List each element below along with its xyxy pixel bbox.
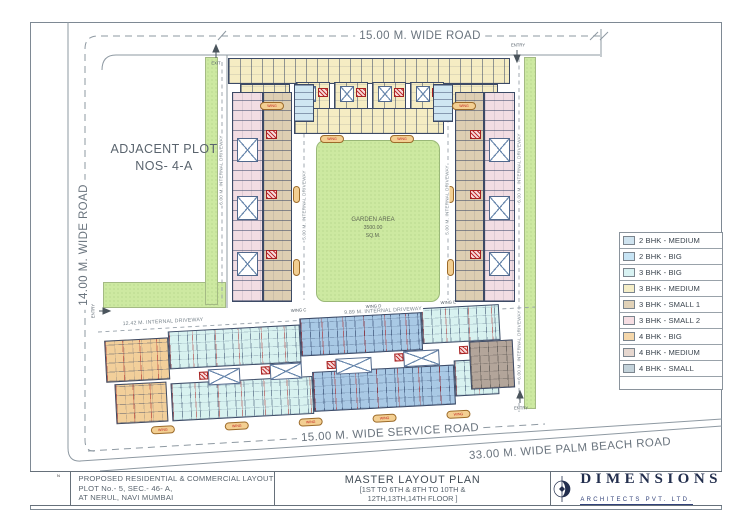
project-info-cell: PROPOSED RESIDENTIAL & COMMERCIAL LAYOUT… [71,472,274,505]
legend-swatch [623,300,635,309]
stair-core [327,361,336,369]
legend-swatch [623,316,635,325]
wing-label-pill: WING [390,135,414,143]
legend-swatch [623,364,635,373]
unit-type-legend: 2 BHK - MEDIUM 2 BHK - BIG 3 BHK - BIG 3… [619,232,723,390]
building-top-strip [228,58,510,84]
lift-shaft [403,349,440,367]
lift-shaft [237,252,258,276]
legend-label: 2 BHK - MEDIUM [639,236,700,245]
garden-line1: GARDEN AREA [351,216,394,224]
legend-empty-row [620,377,722,389]
entry-label-top: ENTRY [511,43,525,48]
legend-row: 3 BHK - SMALL 1 [620,297,722,313]
plan-title-cell: MASTER LAYOUT PLAN [1ST TO 6TH & 8TH TO … [275,472,551,505]
legend-swatch [623,332,635,341]
legend-row: 3 BHK - BIG [620,265,722,281]
lift-shaft [208,368,241,386]
wing-label-pill: WING [260,102,284,110]
building-2bhk-row [312,365,456,412]
lift-shaft [378,86,392,102]
wing-label-pill: WING [225,421,249,430]
wing-label-pill: WING [446,410,470,419]
stair-core [470,130,481,139]
stair-core [266,250,277,259]
legend-swatch [623,236,635,245]
firm-logo-cell: DIMENSIONS ARCHITECTS PVT. LTD. [551,472,722,505]
adjacent-plot-label: ADJACENT PLOT NOS- 4-A [110,141,217,175]
project-line3: AT NERUL, NAVI MUMBAI [78,493,273,503]
stair-core [470,190,481,199]
driveway-label-right-lower: 6.00 M. INTERNAL DRIVEWAY [517,309,522,380]
stair-core [470,250,481,259]
firm-name-wrap: DIMENSIONS ARCHITECTS PVT. LTD. [580,471,722,506]
legend-row: 2 BHK - MEDIUM [620,233,722,249]
building-top-lower-strip [294,108,444,134]
wing-label-pill [447,259,454,276]
master-layout-sheet: WING WING WING WING WING C WING D WING E… [0,0,751,531]
stair-core [318,88,328,97]
lift-shaft [489,196,510,220]
legend-label: 3 BHK - SMALL 2 [639,316,700,325]
legend-label: 3 BHK - BIG [639,268,682,277]
legend-row: 4 BHK - MEDIUM [620,345,722,361]
legend-swatch [623,252,635,261]
exit-label: EXIT [211,61,220,66]
driveway-label-mid-right: 5.00 M. INTERNAL DRIVEWAY [445,164,450,235]
building-3bhk-big-row [170,376,314,421]
stair-core [459,346,468,354]
adjacent-plot-line1: ADJACENT PLOT [110,141,217,158]
wing-label-pill: WING [298,417,322,426]
exit-arrow-icon [213,45,219,52]
lift-shaft [489,252,510,276]
lift-shaft [416,86,430,102]
lift-shaft [237,196,258,220]
adjacent-plot-line2: NOS- 4-A [110,158,217,175]
project-line2: PLOT No.- 5, SEC.- 46- A, [78,484,273,494]
garden-area-label: GARDEN AREA 3500.00 SQ.M. [351,216,394,240]
stair-core [266,190,277,199]
wing-label-pill [293,259,300,276]
compass-north-label: N [57,473,60,478]
lift-shaft [237,138,258,162]
wing-label-pill: WING [452,102,476,110]
legend-label: 4 BHK - SMALL [639,364,694,373]
stair-core [266,130,277,139]
building-4bhk-big [104,337,170,382]
project-line1: PROPOSED RESIDENTIAL & COMMERCIAL LAYOUT [78,474,273,484]
plan-subtitle-2: 12TH,13TH,14TH FLOOR ] [368,495,458,504]
driveway-label-left: 6.00 M. INTERNAL DRIVEWAY [219,134,224,205]
legend-row: 4 BHK - SMALL [620,361,722,377]
legend-row: 2 BHK - BIG [620,249,722,265]
legend-label: 4 BHK - BIG [639,332,682,341]
legend-swatch [623,268,635,277]
legend-swatch [623,348,635,357]
top-road-label: 15.00 M. WIDE ROAD [355,30,485,42]
firm-name: DIMENSIONS [580,471,722,488]
legend-label: 3 BHK - MEDIUM [639,284,700,293]
compass-cell [30,472,71,505]
title-block: PROPOSED RESIDENTIAL & COMMERCIAL LAYOUT… [30,471,722,506]
building-2bhk-row [299,312,423,356]
building-3bhk-big-row [421,304,501,344]
stair-core [261,366,270,374]
project-info: PROPOSED RESIDENTIAL & COMMERCIAL LAYOUT… [71,474,273,503]
wing-label: WING C [291,307,307,313]
lift-shaft [340,86,354,102]
entry-label-bottom: ENTRY [514,406,528,411]
firm-subtitle: ARCHITECTS PVT. LTD. [580,497,693,505]
stair-core [199,371,208,379]
legend-row: 3 BHK - MEDIUM [620,281,722,297]
garden-line2: 3500.00 [351,224,394,232]
lift-shaft [270,362,303,380]
driveway-label-right-upper: 6.00 M. INTERNAL DRIVEWAY [517,132,522,203]
building-right-blue-block [433,84,453,122]
legend-label: 3 BHK - SMALL 1 [639,300,700,309]
wing-label-pill: WING [372,414,396,423]
wing-label-pill [293,186,300,203]
wing-label-pill: WING [320,135,344,143]
left-road-label: 14.00 M. WIDE ROAD [78,180,90,310]
legend-label: 2 BHK - BIG [639,252,682,261]
driveway-label-mid-left: 5.00 M. INTERNAL DRIVEWAY [302,169,307,240]
wing-label-pill: WING [151,425,175,434]
stair-core [394,353,403,361]
legend-label: 4 BHK - MEDIUM [639,348,700,357]
legend-row: 4 BHK - BIG [620,329,722,345]
building-left-blue-block [294,84,314,122]
wing-label: WING E [440,299,456,305]
legend-row: 3 BHK - SMALL 2 [620,313,722,329]
firm-logo-icon [551,476,573,502]
lift-shaft [335,357,372,375]
stair-core [356,88,366,97]
building-4bhk-big [114,382,168,425]
stair-core [394,88,404,97]
garden-line3: SQ.M. [351,232,394,240]
legend-swatch [623,284,635,293]
lift-shaft [489,138,510,162]
building-4bhk-small-block [469,339,515,389]
entry-label-left: ENTRY [91,304,96,318]
entry-arrow-left-icon [103,308,110,314]
